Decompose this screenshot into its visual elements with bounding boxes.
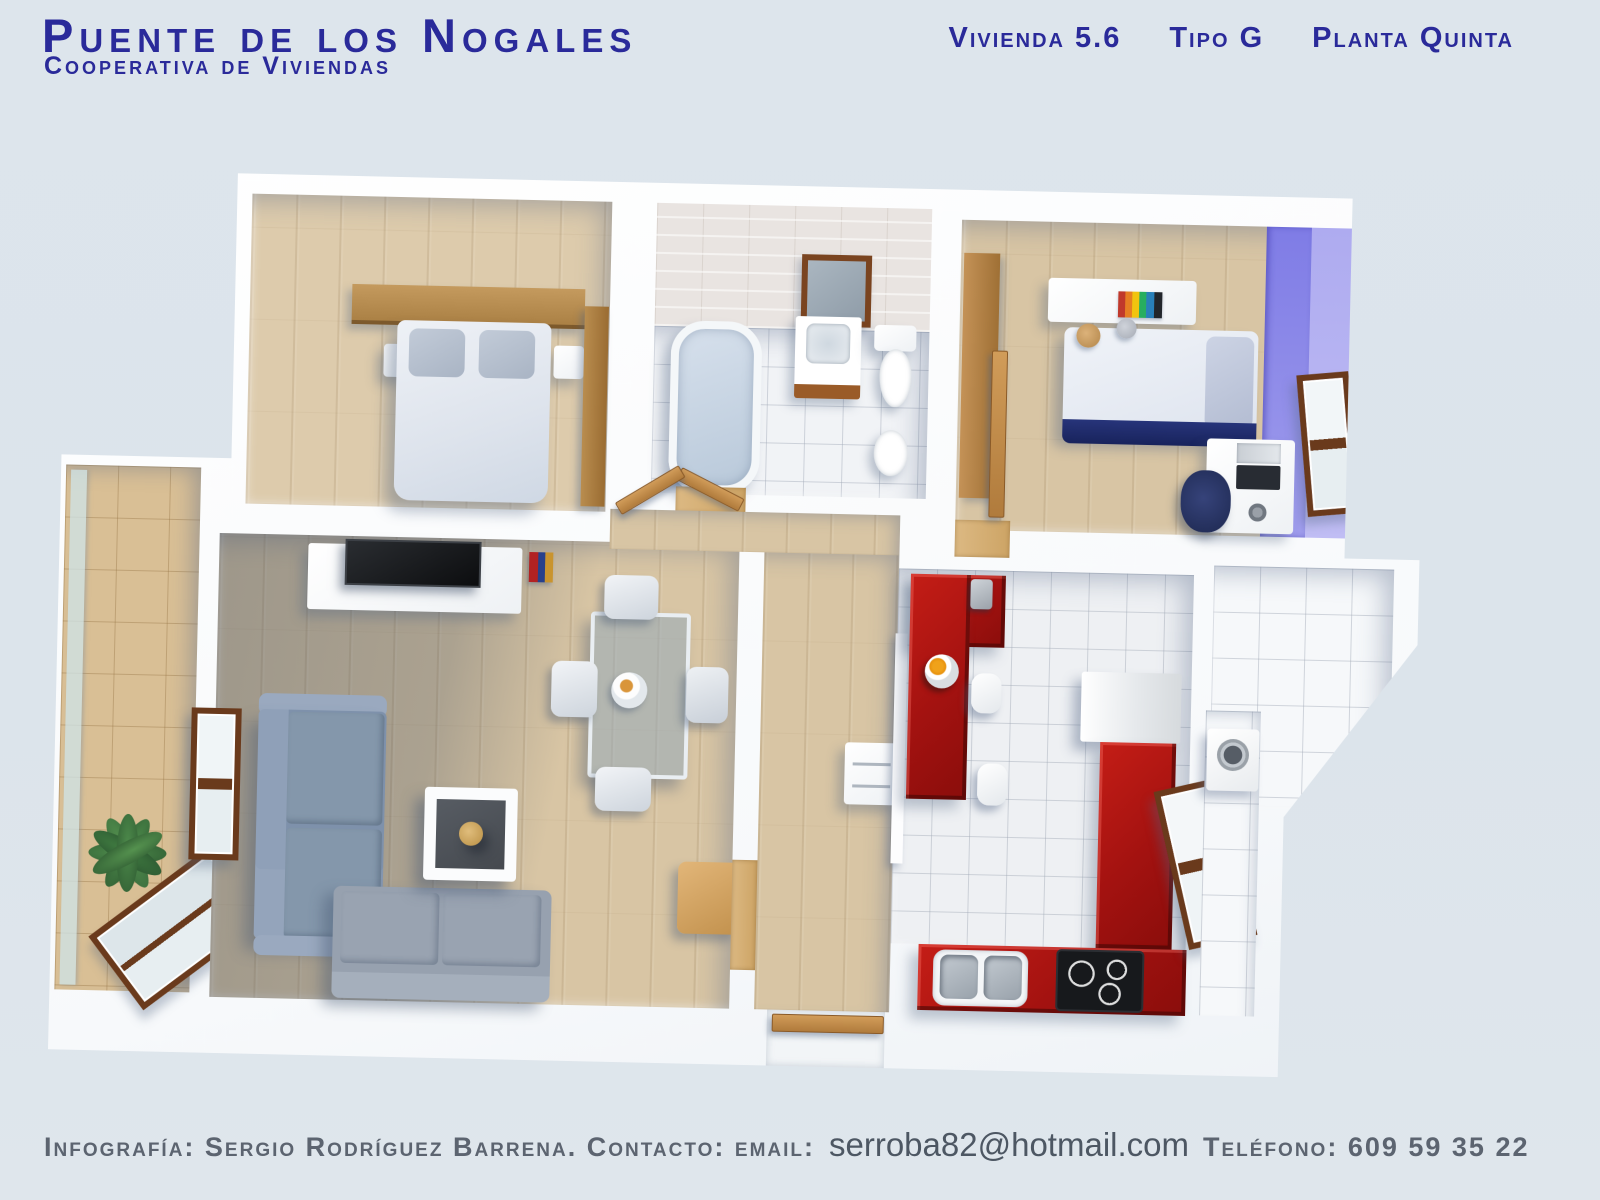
floor-label: Planta Quinta (1312, 22, 1514, 55)
kids-window (1296, 371, 1359, 517)
shelf-books (1118, 291, 1163, 318)
sink-basin (983, 955, 1022, 1000)
project-subtitle: Cooperativa de Viviendas (44, 52, 391, 81)
credits-bar: Infografía: Sergio Rodríguez Barrena. Co… (44, 1126, 1529, 1164)
pillow (478, 330, 535, 379)
plan-identification: Vivienda 5.6 Tipo G Planta Quinta (949, 22, 1515, 55)
dining-chair (595, 767, 652, 812)
decor-books (529, 552, 554, 583)
toilet-cistern (874, 325, 917, 352)
television (345, 539, 482, 588)
refrigerator (1080, 672, 1182, 744)
dining-chair (686, 667, 729, 724)
kitchen-counter-right-run (1096, 742, 1177, 950)
credit-text: Infografía: Sergio Rodríguez Barrena. Co… (44, 1132, 815, 1163)
type-label: Tipo G (1169, 22, 1264, 55)
dining-chair (551, 661, 598, 718)
pillow (408, 328, 465, 377)
vanity-sink (806, 323, 851, 364)
bedroom-wardrobe (580, 306, 609, 506)
nightstand-right (553, 346, 584, 380)
entrance-door (772, 1014, 884, 1035)
cooktop (1057, 951, 1142, 1011)
bar-stool (977, 763, 1008, 806)
sofa-cushion (340, 891, 440, 965)
bathroom-wall-tiles (655, 203, 933, 332)
laptop-lid (1237, 443, 1281, 464)
bar-stool (971, 673, 1002, 714)
living-room-window (188, 707, 241, 860)
desk-chair (1180, 470, 1231, 533)
living-room-doorway (730, 860, 757, 971)
building-walls (38, 144, 1459, 1096)
hallway-upper (609, 509, 900, 556)
sink-basin (939, 954, 978, 999)
contact-email: serroba82@hotmail.com (829, 1126, 1189, 1164)
render-canvas: Puente de los Nogales Cooperativa de Viv… (0, 0, 1600, 1200)
unit-label: Vivienda 5.6 (949, 22, 1122, 55)
kids-pillow (1204, 336, 1254, 429)
sofa-cushion (442, 893, 542, 967)
sofa-cushion (286, 712, 385, 826)
floor-plan (38, 144, 1459, 1096)
kids-doorway (954, 520, 1010, 558)
laptop-keyboard (1236, 465, 1281, 490)
coffee-maker (970, 579, 993, 609)
dining-chair (604, 575, 659, 620)
contact-phone: Teléfono: 609 59 35 22 (1203, 1132, 1529, 1163)
